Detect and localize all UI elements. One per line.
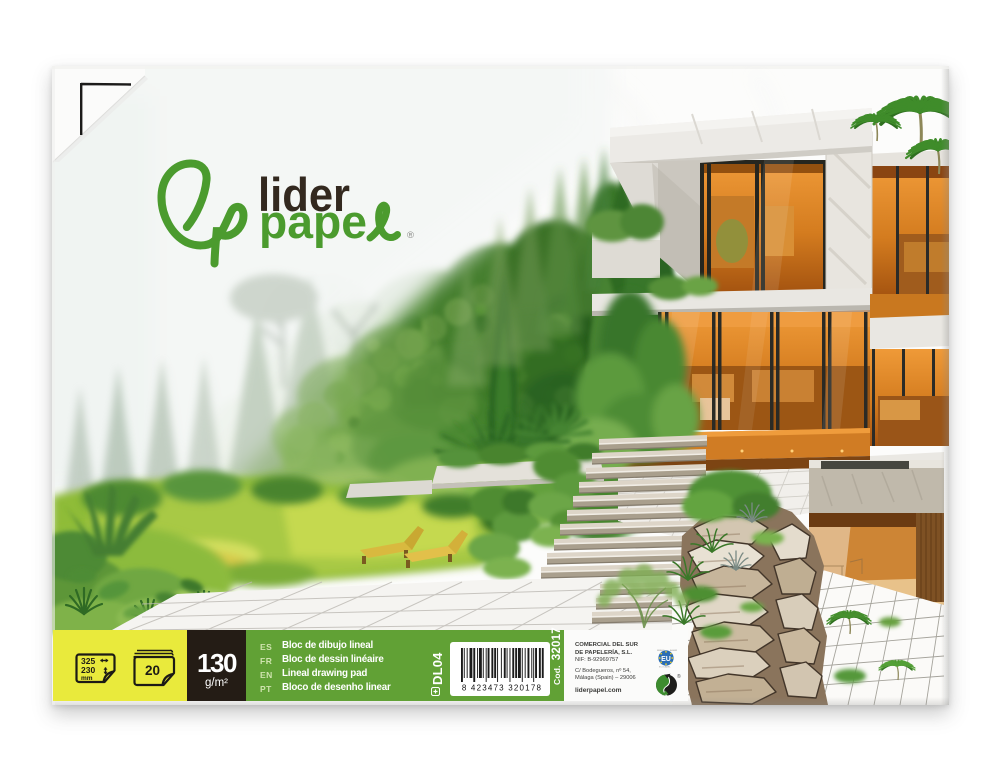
- svg-text:AWARD: AWARD: [670, 649, 677, 652]
- svg-text:®: ®: [677, 673, 681, 680]
- svg-text:mm: mm: [81, 675, 93, 682]
- svg-text:®: ®: [407, 230, 414, 241]
- svg-text:EU: EU: [661, 656, 671, 663]
- svg-text:8 423473 320178: 8 423473 320178: [462, 683, 542, 692]
- svg-text:20: 20: [145, 663, 160, 678]
- svg-text:BRAND: BRAND: [657, 649, 665, 652]
- svg-text:ECOLABEL: ECOLABEL: [659, 666, 671, 669]
- svg-text:pape: pape: [259, 195, 367, 248]
- svg-text:230: 230: [81, 665, 95, 675]
